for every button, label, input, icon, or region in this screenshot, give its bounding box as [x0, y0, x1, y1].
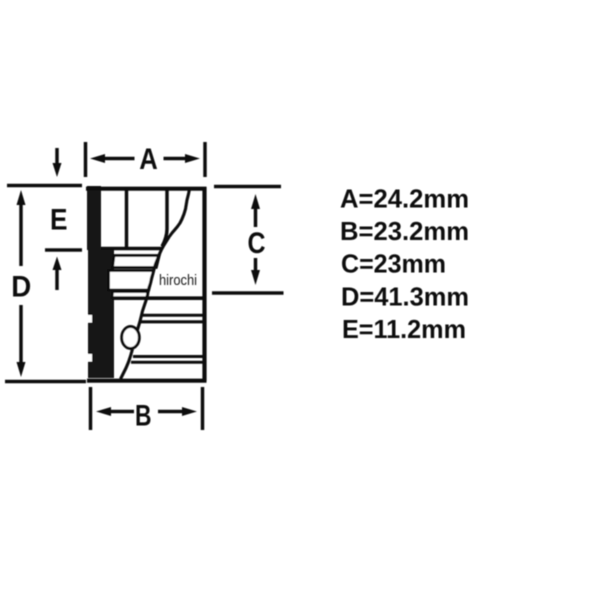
svg-text:B: B — [135, 400, 152, 433]
svg-text:B=23.2mm: B=23.2mm — [340, 216, 469, 246]
svg-text:D: D — [11, 271, 31, 304]
svg-text:C: C — [248, 227, 266, 260]
svg-text:D=41.3mm: D=41.3mm — [341, 282, 469, 312]
svg-text:C=23mm: C=23mm — [341, 249, 446, 279]
svg-text:A: A — [139, 143, 158, 176]
svg-text:E: E — [50, 204, 68, 237]
svg-text:hirochi: hirochi — [159, 272, 197, 289]
svg-text:E=11.2mm: E=11.2mm — [342, 314, 466, 344]
svg-text:A=24.2mm: A=24.2mm — [340, 184, 469, 214]
